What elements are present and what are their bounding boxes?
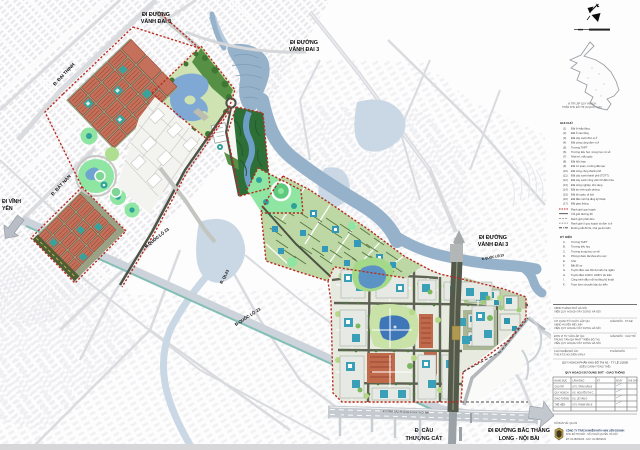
svg-text:D.: D. [563, 254, 566, 258]
svg-text:CHỦ TRÌ: CHỦ TRÌ [555, 386, 565, 389]
svg-text:THỂ HIỆN: THỂ HIỆN [555, 404, 566, 407]
svg-text:KÝ HIỆU: KÝ HIỆU [560, 234, 572, 239]
svg-text:KT.GĐ: KT.GĐ [625, 319, 633, 323]
svg-text:Đất cây xanh đơn vị ở: Đất cây xanh đơn vị ở [571, 136, 598, 140]
svg-text:KTS. PHẠM VĂN E: KTS. PHẠM VĂN E [573, 404, 593, 407]
svg-text:GIAO THÔNG: GIAO THÔNG [555, 398, 570, 401]
svg-text:B.: B. [563, 245, 566, 249]
svg-text:Trạm bơm chuyển bậc dự kiến: Trạm bơm chuyển bậc dự kiến [571, 282, 608, 286]
svg-text:(13): (13) [563, 183, 568, 187]
svg-text:Trường THPT: Trường THPT [571, 240, 588, 244]
svg-text:KHU ĐÔ THỊ MỚI - SỐ 2 NGÔ QUYỀ: KHU ĐÔ THỊ MỚI - SỐ 2 NGÔ QUYỀN, HÀ NỘI [566, 433, 618, 436]
svg-text:(17): (17) [563, 202, 568, 206]
svg-text:K.: K. [563, 282, 566, 286]
svg-text:LONG - NỘI BÀI: LONG - NỘI BÀI [499, 434, 540, 442]
svg-text:(6): (6) [563, 150, 566, 154]
svg-text:I.: I. [563, 278, 565, 282]
svg-text:Đất tôn giáo, di tích: Đất tôn giáo, di tích [571, 192, 595, 196]
svg-text:H.: H. [563, 273, 566, 277]
svg-text:Đất hỗn hợp: Đất hỗn hợp [571, 159, 586, 163]
svg-text:Công trình đầu mối hạ tầng kỹ: Công trình đầu mối hạ tầng kỹ thuật [571, 278, 614, 282]
svg-text:ĐI ĐƯỜNG: ĐI ĐƯỜNG [479, 233, 507, 241]
svg-text:VÀNH ĐAI 3: VÀNH ĐAI 3 [289, 46, 320, 53]
svg-text:(15): (15) [563, 192, 568, 196]
svg-text:(12): (12) [563, 178, 568, 182]
svg-text:Ranh giới ô quy hoạch và đơn v: Ranh giới ô quy hoạch và đơn vị ở [571, 222, 613, 226]
svg-text:KTS. TRẦN VĂN B: KTS. TRẦN VĂN B [573, 386, 593, 389]
svg-text:(16): (16) [563, 197, 568, 201]
svg-text:E.: E. [563, 259, 566, 263]
svg-text:Đất đầu mối hạ tầng kỹ thuật: Đất đầu mối hạ tầng kỹ thuật [571, 197, 606, 201]
svg-text:VÀNH ĐAI 3: VÀNH ĐAI 3 [141, 18, 172, 25]
svg-text:QUY HOẠCH SỬ DỤNG ĐẤT - GIAO T: QUY HOẠCH SỬ DỤNG ĐẤT - GIAO THÔNG [565, 370, 626, 375]
svg-text:NGÀY: NGÀY [616, 380, 623, 383]
svg-text:KS. NGUYỄN THỊ C: KS. NGUYỄN THỊ C [573, 392, 594, 395]
svg-text:QUY HOẠCH: QUY HOẠCH [555, 392, 569, 395]
svg-text:(11): (11) [563, 174, 568, 178]
svg-text:Trường tiểu học: Trường tiểu học [571, 245, 591, 249]
svg-text:Đất an ninh quốc phòng: Đất an ninh quốc phòng [571, 188, 600, 192]
svg-text:ĐI ĐƯỜNG BẮC THĂNG: ĐI ĐƯỜNG BẮC THĂNG [488, 426, 550, 434]
svg-text:Ranh giới quy hoạch: Ranh giới quy hoạch [571, 207, 596, 211]
svg-text:Bãi đỗ xe: Bãi đỗ xe [571, 264, 583, 268]
svg-text:Chỉ giới đường đỏ: Chỉ giới đường đỏ [571, 212, 593, 216]
svg-text:(9): (9) [563, 164, 566, 168]
svg-text:Đất công cộng thành phố: Đất công cộng thành phố [571, 169, 602, 173]
svg-text:Nhà trẻ, mẫu giáo: Nhà trẻ, mẫu giáo [571, 155, 593, 159]
svg-text:Đất cây xanh công viên hồ điều: Đất cây xanh công viên hồ điều hòa [571, 178, 614, 182]
svg-text:Trường trung học cơ sở: Trường trung học cơ sở [571, 249, 600, 253]
svg-text:(14): (14) [563, 188, 568, 192]
svg-text:F.: F. [563, 264, 565, 268]
svg-text:(10): (10) [563, 169, 568, 173]
svg-text:(5): (5) [563, 145, 566, 149]
svg-text:A.: A. [563, 240, 566, 244]
svg-text:C.: C. [563, 249, 566, 253]
svg-text:Phòng khám đa khoa khu vực: Phòng khám đa khoa khu vực [571, 254, 607, 258]
svg-text:Đất cây xanh thành phố (TDTT): Đất cây xanh thành phố (TDTT) [571, 174, 609, 178]
svg-text:ĐI VĨNH: ĐI VĨNH [2, 198, 21, 205]
svg-text:YÊN: YÊN [2, 204, 13, 212]
svg-text:KÝ: KÝ [597, 380, 601, 383]
svg-text:Đất giao thông: Đất giao thông [571, 202, 589, 206]
svg-text:(1): (1) [563, 127, 566, 131]
svg-text:Đất cơ quan, trường đào tạo: Đất cơ quan, trường đào tạo [571, 164, 606, 168]
svg-text:Đất ở cao tầng: Đất ở cao tầng [571, 131, 589, 135]
svg-text:Đất công nghiệp, kho tàng: Đất công nghiệp, kho tàng [571, 183, 603, 187]
svg-text:Trường tiểu học, trung học cơ: Trường tiểu học, trung học cơ sở [571, 150, 611, 154]
svg-text:LÃNH ĐẠO: LÃNH ĐẠO [573, 380, 585, 383]
svg-text:(3): (3) [563, 136, 566, 140]
svg-text:QUY HOẠCH PHÂN KHU ĐÔ THỊ N1 -: QUY HOẠCH PHÂN KHU ĐÔ THỊ N1 - TỶ LỆ 1/2… [562, 360, 629, 365]
svg-text:Tuyến điện 110KV, 220KV dự kiế: Tuyến điện 110KV, 220KV dự kiến [571, 273, 612, 277]
svg-text:Đất ở thấp tầng: Đất ở thấp tầng [571, 127, 590, 131]
svg-text:(7): (7) [563, 155, 566, 159]
svg-text:Ranh giới phân khu: Ranh giới phân khu [571, 217, 595, 221]
svg-text:(2): (2) [563, 131, 566, 135]
svg-text:ĐI ĐƯỜNG: ĐI ĐƯỜNG [290, 38, 318, 46]
svg-text:HẠNG MỤC: HẠNG MỤC [555, 380, 568, 383]
svg-text:(8): (8) [563, 159, 566, 163]
svg-text:KS. LÊ VĂN D: KS. LÊ VĂN D [573, 398, 588, 401]
svg-text:ĐI CẦU: ĐI CẦU [415, 427, 434, 434]
svg-text:Chợ: Chợ [571, 259, 576, 263]
svg-text:PHÂN KHU ĐÔ THỊ (N.QUỐC OAI): PHÂN KHU ĐÔ THỊ (N.QUỐC OAI) [562, 106, 602, 109]
svg-text:GHI CHÚ: GHI CHÚ [628, 380, 638, 383]
svg-text:ĐT: 04.38252180 - FAX: 04.3825: ĐT: 04.38252180 - FAX: 04.38252181 [566, 438, 607, 441]
svg-text:(4): (4) [563, 141, 566, 145]
svg-text:VÀNH ĐAI 3: VÀNH ĐAI 3 [478, 241, 509, 248]
svg-text:G.: G. [563, 268, 566, 272]
svg-text:Tuyến điện cao thế dự kiến hạ: Tuyến điện cao thế dự kiến hạ ngầm [571, 268, 615, 272]
svg-text:GHI CHÚ: GHI CHÚ [560, 120, 573, 125]
svg-text:ĐI ĐƯỜNG: ĐI ĐƯỜNG [142, 10, 170, 18]
svg-text:Trường THPT: Trường THPT [571, 145, 588, 149]
svg-text:THƯỢNG CÁT: THƯỢNG CÁT [406, 435, 444, 442]
svg-text:Đất công cộng đơn vị ở: Đất công cộng đơn vị ở [571, 141, 599, 145]
